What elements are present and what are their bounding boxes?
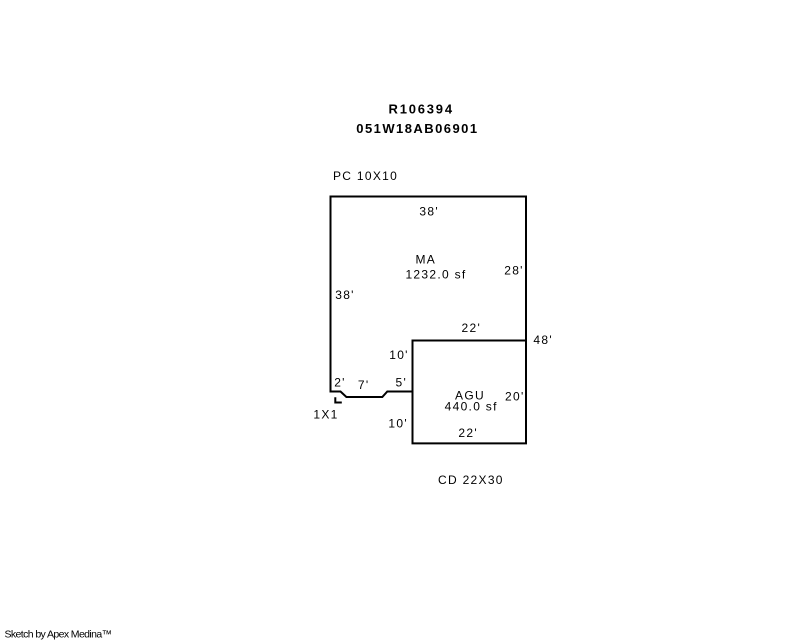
svg-text:38': 38' (335, 288, 355, 302)
svg-text:28': 28' (504, 264, 524, 278)
svg-text:051W18AB06901: 051W18AB06901 (356, 121, 478, 136)
svg-text:20': 20' (505, 390, 525, 404)
svg-text:2': 2' (334, 376, 346, 390)
svg-text:1X1: 1X1 (313, 407, 338, 421)
svg-text:1232.0 sf: 1232.0 sf (405, 267, 466, 281)
svg-text:R106394: R106394 (389, 102, 454, 117)
svg-text:22': 22' (458, 426, 478, 440)
svg-text:38': 38' (419, 204, 439, 218)
svg-text:MA: MA (415, 252, 436, 266)
svg-text:10': 10' (389, 348, 409, 362)
svg-text:CD 22X30: CD 22X30 (438, 473, 504, 487)
svg-text:22': 22' (462, 321, 482, 335)
svg-text:48': 48' (533, 333, 553, 347)
svg-text:10': 10' (388, 417, 408, 431)
svg-text:5': 5' (396, 376, 408, 390)
svg-text:PC 10X10: PC 10X10 (333, 169, 398, 183)
svg-text:440.0 sf: 440.0 sf (445, 400, 498, 414)
svg-text:Sketch by Apex Medina™: Sketch by Apex Medina™ (5, 628, 112, 640)
svg-text:7': 7' (358, 378, 370, 392)
